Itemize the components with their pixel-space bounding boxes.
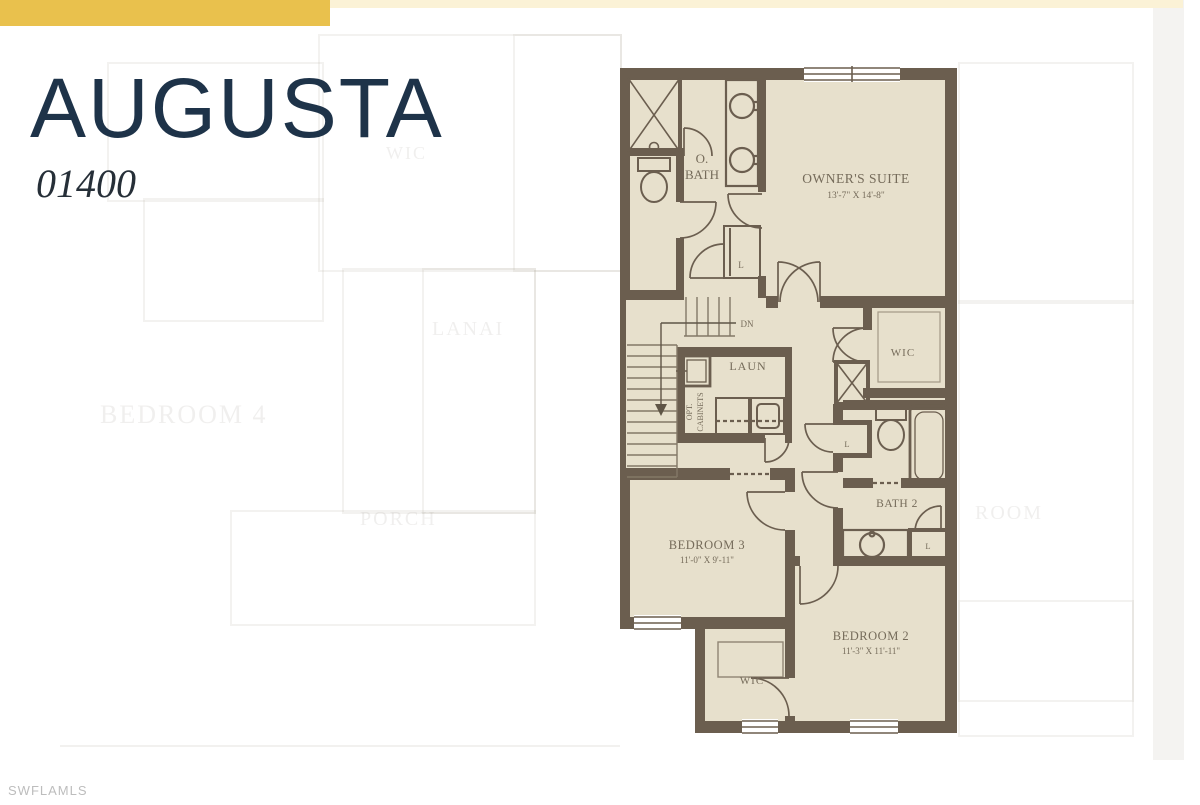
- ghost-room-outline: [958, 600, 1134, 737]
- stairs-dn-label: DN: [741, 319, 754, 329]
- plan-number: 01400: [36, 160, 444, 207]
- ghost-room-label: LANAI: [432, 318, 504, 341]
- ghost-room-outline: [958, 62, 1134, 304]
- window-bedroom3: [634, 615, 681, 631]
- obath-label-line1: O.: [696, 151, 709, 166]
- wic-lower-label: WIC: [740, 675, 764, 687]
- ghost-room-outline: [143, 198, 324, 322]
- bath2-label: BATH 2: [876, 498, 918, 510]
- mls-watermark: SWFLAMLS: [8, 783, 88, 798]
- linen-top-label: L: [738, 260, 744, 270]
- bedroom3-dims: 11'-0" X 9'-11": [680, 555, 734, 565]
- ghost-room-label: ROOM: [975, 502, 1043, 525]
- owners-suite-dims: 13'-7" X 14'-8": [827, 191, 885, 201]
- laundry-label: LAUN: [729, 359, 766, 373]
- ghost-room-outline: [422, 268, 536, 514]
- obath-label-line2: BATH: [685, 167, 719, 182]
- linen-hall-label: L: [844, 439, 849, 449]
- title-block: AUGUSTA 01400: [30, 66, 444, 207]
- wic-upper-label: WIC: [891, 347, 915, 359]
- window-bedroom2: [850, 719, 898, 735]
- ghost-wall-line: [60, 745, 620, 747]
- owners-suite-label: OWNER'S SUITE: [802, 171, 910, 186]
- ghost-room-label: BEDROOM 4: [100, 400, 268, 430]
- bedroom2-dims: 11'-3" X 11'-11": [842, 646, 900, 656]
- bedroom2-label: BEDROOM 2: [833, 629, 909, 643]
- gold-accent-bar: [0, 0, 330, 26]
- second-floor-plan: O. BATH OWNER'S SUITE 13'-7" X 14'-8" L …: [600, 50, 980, 750]
- opt-cabinets-label-1: OPT.: [685, 404, 694, 421]
- window-wic-lower: [742, 719, 778, 735]
- page-title: AUGUSTA: [30, 66, 444, 150]
- linen-bath2-label: L: [925, 541, 930, 551]
- right-gray-band: [1153, 0, 1184, 760]
- ghost-room-label: PORCH: [360, 508, 437, 531]
- bedroom3-label: BEDROOM 3: [669, 538, 745, 552]
- opt-cabinets-label-2: CABINETS: [696, 392, 705, 431]
- window-owners-suite: [804, 66, 900, 82]
